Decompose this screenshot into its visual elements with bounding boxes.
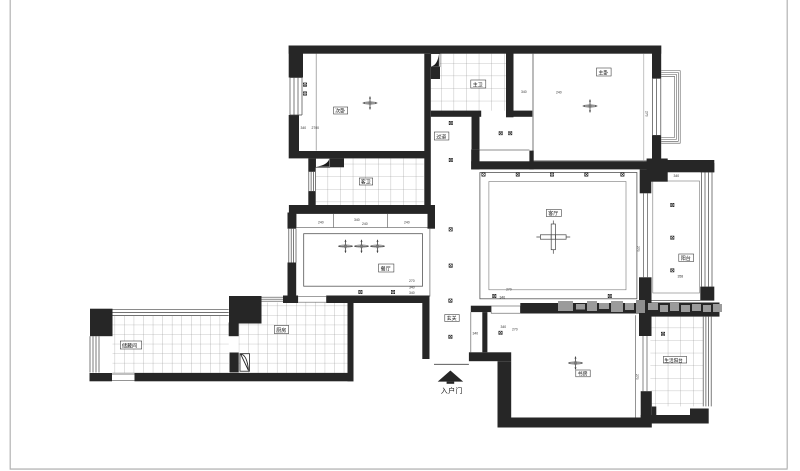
svg-text:340: 340 [473,332,479,336]
svg-text:270: 270 [506,288,512,292]
svg-text:2700: 2700 [312,126,320,130]
svg-text:生活阳台: 生活阳台 [664,357,683,364]
svg-text:客厅: 客厅 [548,210,558,217]
svg-text:240: 240 [404,221,410,225]
svg-text:餐厅: 餐厅 [381,265,391,272]
svg-text:储藏间: 储藏间 [122,342,137,349]
svg-text:书房: 书房 [578,371,588,378]
svg-text:过道: 过道 [436,133,446,140]
svg-text:270: 270 [635,374,639,380]
svg-text:340: 340 [354,218,360,222]
svg-text:340: 340 [500,296,506,300]
svg-text:次卧: 次卧 [335,108,345,115]
svg-text:270: 270 [512,328,518,332]
svg-text:358: 358 [678,275,684,279]
svg-text:240: 240 [362,222,368,226]
svg-text:240: 240 [318,221,324,225]
svg-text:玄关: 玄关 [447,315,457,322]
svg-text:270: 270 [409,279,415,283]
svg-text:340: 340 [301,126,307,130]
svg-text:客卫: 客卫 [361,179,371,186]
svg-text:270: 270 [636,246,640,252]
svg-text:340: 340 [409,291,415,295]
svg-text:240: 240 [556,91,562,95]
svg-text:厨房: 厨房 [276,327,286,334]
svg-text:阳台: 阳台 [681,255,691,262]
svg-text:主卧: 主卧 [598,69,608,76]
svg-text:340: 340 [674,174,680,178]
svg-text:主卫: 主卫 [473,81,483,88]
svg-text:340: 340 [409,286,415,290]
svg-text:340: 340 [501,325,507,329]
svg-text:入户门: 入户门 [441,386,463,395]
svg-text:340: 340 [521,90,527,94]
svg-text:270: 270 [645,111,649,117]
